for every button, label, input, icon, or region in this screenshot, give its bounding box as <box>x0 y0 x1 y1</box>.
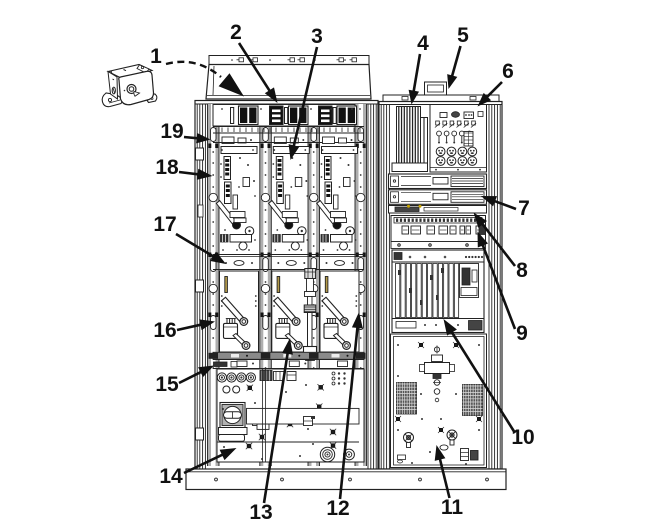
svg-text:16: 16 <box>153 319 176 342</box>
svg-text:1: 1 <box>150 45 162 68</box>
svg-text:12: 12 <box>326 497 349 520</box>
svg-text:13: 13 <box>249 501 272 524</box>
svg-text:7: 7 <box>518 197 530 220</box>
svg-text:14: 14 <box>159 465 183 488</box>
svg-text:9: 9 <box>516 322 528 345</box>
svg-text:19: 19 <box>160 120 183 143</box>
svg-text:5: 5 <box>457 24 469 47</box>
svg-text:2: 2 <box>230 21 242 44</box>
svg-text:15: 15 <box>155 373 179 396</box>
svg-text:18: 18 <box>155 156 179 179</box>
svg-text:4: 4 <box>417 32 429 55</box>
svg-text:8: 8 <box>516 259 528 282</box>
svg-text:17: 17 <box>153 213 176 236</box>
svg-text:6: 6 <box>502 60 514 83</box>
svg-text:11: 11 <box>441 496 464 519</box>
svg-text:3: 3 <box>311 25 323 48</box>
svg-text:10: 10 <box>511 426 534 449</box>
